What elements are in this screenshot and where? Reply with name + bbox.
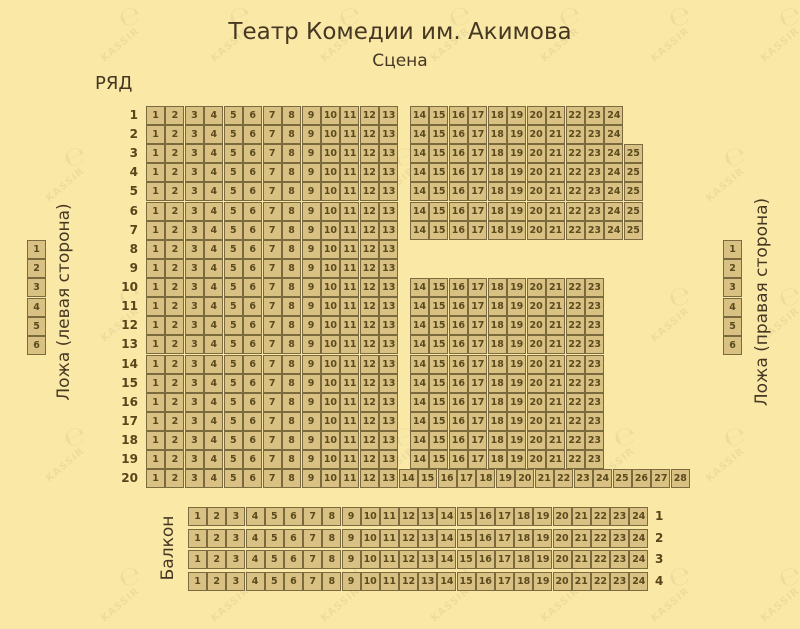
balcony-seat[interactable]: 12: [399, 550, 418, 569]
seat[interactable]: 1: [146, 182, 165, 201]
seat[interactable]: 13: [379, 355, 398, 374]
seat[interactable]: 5: [224, 450, 243, 469]
seat[interactable]: 15: [429, 144, 448, 163]
seat[interactable]: 24: [604, 182, 623, 201]
seat[interactable]: 3: [185, 278, 204, 297]
seat[interactable]: 4: [204, 144, 223, 163]
seat[interactable]: 9: [302, 221, 321, 240]
seat[interactable]: 22: [566, 412, 585, 431]
seat[interactable]: 23: [585, 450, 604, 469]
seat[interactable]: 17: [468, 355, 487, 374]
seat[interactable]: 21: [546, 163, 565, 182]
seat[interactable]: 10: [321, 412, 340, 431]
loge-left-seat[interactable]: 1: [27, 240, 46, 259]
seat[interactable]: 5: [224, 163, 243, 182]
seat[interactable]: 6: [243, 450, 262, 469]
balcony-seat[interactable]: 15: [457, 550, 476, 569]
seat[interactable]: 14: [410, 221, 429, 240]
seat[interactable]: 2: [165, 125, 184, 144]
seat[interactable]: 17: [468, 163, 487, 182]
balcony-seat[interactable]: 21: [572, 529, 591, 548]
balcony-seat[interactable]: 9: [342, 572, 361, 591]
seat[interactable]: 6: [243, 316, 262, 335]
seat[interactable]: 2: [165, 335, 184, 354]
seat[interactable]: 20: [527, 374, 546, 393]
seat[interactable]: 22: [566, 106, 585, 125]
balcony-seat[interactable]: 23: [610, 529, 629, 548]
seat[interactable]: 15: [429, 221, 448, 240]
seat[interactable]: 16: [449, 202, 468, 221]
seat[interactable]: 18: [488, 106, 507, 125]
seat[interactable]: 10: [321, 316, 340, 335]
seat[interactable]: 10: [321, 240, 340, 259]
balcony-seat[interactable]: 4: [246, 572, 265, 591]
seat[interactable]: 12: [360, 163, 379, 182]
seat[interactable]: 4: [204, 469, 223, 488]
seat[interactable]: 6: [243, 335, 262, 354]
seat[interactable]: 17: [468, 144, 487, 163]
seat[interactable]: 16: [449, 125, 468, 144]
seat[interactable]: 16: [449, 163, 468, 182]
seat[interactable]: 16: [449, 355, 468, 374]
balcony-seat[interactable]: 18: [514, 550, 533, 569]
seat[interactable]: 4: [204, 355, 223, 374]
seat[interactable]: 4: [204, 335, 223, 354]
seat[interactable]: 9: [302, 412, 321, 431]
seat[interactable]: 1: [146, 221, 165, 240]
seat[interactable]: 21: [546, 278, 565, 297]
seat[interactable]: 5: [224, 182, 243, 201]
seat[interactable]: 11: [340, 374, 359, 393]
seat[interactable]: 17: [468, 297, 487, 316]
seat[interactable]: 13: [379, 335, 398, 354]
seat[interactable]: 16: [449, 335, 468, 354]
seat[interactable]: 12: [360, 297, 379, 316]
seat[interactable]: 19: [507, 335, 526, 354]
seat[interactable]: 10: [321, 163, 340, 182]
seat[interactable]: 19: [507, 144, 526, 163]
seat[interactable]: 7: [263, 335, 282, 354]
seat[interactable]: 22: [566, 278, 585, 297]
seat[interactable]: 14: [410, 335, 429, 354]
seat[interactable]: 18: [488, 450, 507, 469]
seat[interactable]: 9: [302, 450, 321, 469]
seat[interactable]: 17: [468, 106, 487, 125]
seat[interactable]: 20: [527, 393, 546, 412]
loge-left-seat[interactable]: 5: [27, 317, 46, 336]
balcony-seat[interactable]: 20: [553, 529, 572, 548]
seat[interactable]: 22: [554, 469, 573, 488]
seat[interactable]: 10: [321, 450, 340, 469]
seat[interactable]: 12: [360, 469, 379, 488]
seat[interactable]: 5: [224, 278, 243, 297]
seat[interactable]: 9: [302, 106, 321, 125]
seat[interactable]: 4: [204, 431, 223, 450]
seat[interactable]: 10: [321, 259, 340, 278]
balcony-seat[interactable]: 13: [418, 550, 437, 569]
seat[interactable]: 3: [185, 450, 204, 469]
seat[interactable]: 17: [468, 221, 487, 240]
seat[interactable]: 22: [566, 374, 585, 393]
seat[interactable]: 6: [243, 469, 262, 488]
seat[interactable]: 8: [282, 163, 301, 182]
seat[interactable]: 10: [321, 393, 340, 412]
seat[interactable]: 13: [379, 106, 398, 125]
seat[interactable]: 5: [224, 221, 243, 240]
seat[interactable]: 21: [546, 297, 565, 316]
balcony-seat[interactable]: 5: [265, 507, 284, 526]
seat[interactable]: 25: [624, 182, 643, 201]
seat[interactable]: 21: [546, 431, 565, 450]
seat[interactable]: 20: [527, 221, 546, 240]
seat[interactable]: 13: [379, 297, 398, 316]
seat[interactable]: 20: [527, 125, 546, 144]
seat[interactable]: 19: [507, 163, 526, 182]
seat[interactable]: 18: [488, 125, 507, 144]
seat[interactable]: 17: [468, 278, 487, 297]
seat[interactable]: 23: [585, 374, 604, 393]
seat[interactable]: 22: [566, 163, 585, 182]
seat[interactable]: 16: [449, 144, 468, 163]
balcony-seat[interactable]: 3: [226, 507, 245, 526]
balcony-seat[interactable]: 20: [553, 550, 572, 569]
seat[interactable]: 15: [429, 355, 448, 374]
seat[interactable]: 13: [379, 316, 398, 335]
seat[interactable]: 23: [585, 316, 604, 335]
seat[interactable]: 7: [263, 355, 282, 374]
seat[interactable]: 14: [399, 469, 418, 488]
seat[interactable]: 11: [340, 297, 359, 316]
seat[interactable]: 20: [527, 144, 546, 163]
seat[interactable]: 12: [360, 125, 379, 144]
seat[interactable]: 17: [468, 125, 487, 144]
seat[interactable]: 24: [604, 202, 623, 221]
seat[interactable]: 5: [224, 431, 243, 450]
seat[interactable]: 23: [585, 431, 604, 450]
seat[interactable]: 14: [410, 278, 429, 297]
seat[interactable]: 6: [243, 106, 262, 125]
seat[interactable]: 25: [624, 221, 643, 240]
seat[interactable]: 2: [165, 182, 184, 201]
seat[interactable]: 5: [224, 297, 243, 316]
seat[interactable]: 7: [263, 182, 282, 201]
seat[interactable]: 15: [418, 469, 437, 488]
seat[interactable]: 13: [379, 240, 398, 259]
seat[interactable]: 3: [185, 202, 204, 221]
seat[interactable]: 19: [507, 297, 526, 316]
seat[interactable]: 3: [185, 182, 204, 201]
balcony-seat[interactable]: 2: [207, 529, 226, 548]
seat[interactable]: 22: [566, 431, 585, 450]
seat[interactable]: 8: [282, 297, 301, 316]
seat[interactable]: 7: [263, 125, 282, 144]
seat[interactable]: 1: [146, 450, 165, 469]
seat[interactable]: 14: [410, 412, 429, 431]
seat[interactable]: 3: [185, 240, 204, 259]
seat[interactable]: 17: [468, 202, 487, 221]
seat[interactable]: 20: [527, 106, 546, 125]
seat[interactable]: 20: [527, 450, 546, 469]
seat[interactable]: 11: [340, 106, 359, 125]
seat[interactable]: 6: [243, 278, 262, 297]
seat[interactable]: 18: [488, 297, 507, 316]
balcony-seat[interactable]: 5: [265, 550, 284, 569]
seat[interactable]: 5: [224, 393, 243, 412]
seat[interactable]: 7: [263, 393, 282, 412]
seat[interactable]: 7: [263, 259, 282, 278]
seat[interactable]: 22: [566, 182, 585, 201]
seat[interactable]: 6: [243, 259, 262, 278]
balcony-seat[interactable]: 16: [476, 507, 495, 526]
seat[interactable]: 13: [379, 163, 398, 182]
seat[interactable]: 12: [360, 393, 379, 412]
balcony-seat[interactable]: 7: [303, 529, 322, 548]
seat[interactable]: 13: [379, 202, 398, 221]
seat[interactable]: 19: [507, 374, 526, 393]
seat[interactable]: 11: [340, 335, 359, 354]
loge-left-seat[interactable]: 4: [27, 298, 46, 317]
seat[interactable]: 6: [243, 393, 262, 412]
seat[interactable]: 2: [165, 412, 184, 431]
seat[interactable]: 6: [243, 202, 262, 221]
seat[interactable]: 13: [379, 412, 398, 431]
seat[interactable]: 9: [302, 278, 321, 297]
seat[interactable]: 23: [585, 355, 604, 374]
seat[interactable]: 20: [527, 316, 546, 335]
seat[interactable]: 17: [468, 450, 487, 469]
seat[interactable]: 15: [429, 106, 448, 125]
seat[interactable]: 22: [566, 393, 585, 412]
seat[interactable]: 9: [302, 163, 321, 182]
seat[interactable]: 7: [263, 316, 282, 335]
seat[interactable]: 9: [302, 335, 321, 354]
balcony-seat[interactable]: 3: [226, 572, 245, 591]
seat[interactable]: 9: [302, 144, 321, 163]
seat[interactable]: 18: [488, 335, 507, 354]
seat[interactable]: 9: [302, 240, 321, 259]
seat[interactable]: 4: [204, 125, 223, 144]
seat[interactable]: 8: [282, 221, 301, 240]
seat[interactable]: 13: [379, 469, 398, 488]
seat[interactable]: 8: [282, 335, 301, 354]
balcony-seat[interactable]: 18: [514, 529, 533, 548]
seat[interactable]: 18: [476, 469, 495, 488]
seat[interactable]: 8: [282, 412, 301, 431]
seat[interactable]: 13: [379, 221, 398, 240]
seat[interactable]: 16: [449, 182, 468, 201]
seat[interactable]: 5: [224, 316, 243, 335]
balcony-seat[interactable]: 6: [284, 572, 303, 591]
seat[interactable]: 3: [185, 125, 204, 144]
seat[interactable]: 1: [146, 316, 165, 335]
balcony-seat[interactable]: 7: [303, 572, 322, 591]
seat[interactable]: 23: [585, 297, 604, 316]
seat[interactable]: 3: [185, 106, 204, 125]
balcony-seat[interactable]: 6: [284, 529, 303, 548]
seat[interactable]: 9: [302, 125, 321, 144]
seat[interactable]: 17: [468, 412, 487, 431]
seat[interactable]: 8: [282, 202, 301, 221]
seat[interactable]: 12: [360, 144, 379, 163]
seat[interactable]: 21: [546, 335, 565, 354]
seat[interactable]: 28: [671, 469, 690, 488]
seat[interactable]: 21: [546, 106, 565, 125]
seat[interactable]: 24: [604, 163, 623, 182]
seat[interactable]: 13: [379, 450, 398, 469]
seat[interactable]: 14: [410, 393, 429, 412]
seat[interactable]: 12: [360, 259, 379, 278]
seat[interactable]: 22: [566, 202, 585, 221]
seat[interactable]: 15: [429, 278, 448, 297]
seat[interactable]: 7: [263, 374, 282, 393]
seat[interactable]: 14: [410, 297, 429, 316]
seat[interactable]: 6: [243, 240, 262, 259]
seat[interactable]: 15: [429, 182, 448, 201]
balcony-seat[interactable]: 13: [418, 572, 437, 591]
balcony-seat[interactable]: 14: [437, 550, 456, 569]
balcony-seat[interactable]: 13: [418, 529, 437, 548]
seat[interactable]: 13: [379, 374, 398, 393]
seat[interactable]: 4: [204, 412, 223, 431]
seat[interactable]: 20: [527, 297, 546, 316]
seat[interactable]: 3: [185, 316, 204, 335]
seat[interactable]: 8: [282, 355, 301, 374]
balcony-seat[interactable]: 19: [533, 529, 552, 548]
seat[interactable]: 22: [566, 335, 585, 354]
seat[interactable]: 3: [185, 469, 204, 488]
seat[interactable]: 25: [624, 144, 643, 163]
seat[interactable]: 21: [546, 355, 565, 374]
seat[interactable]: 4: [204, 393, 223, 412]
balcony-seat[interactable]: 12: [399, 529, 418, 548]
seat[interactable]: 19: [507, 355, 526, 374]
seat[interactable]: 21: [546, 412, 565, 431]
seat[interactable]: 11: [340, 202, 359, 221]
loge-left-seat[interactable]: 6: [27, 336, 46, 355]
balcony-seat[interactable]: 21: [572, 550, 591, 569]
seat[interactable]: 7: [263, 106, 282, 125]
seat[interactable]: 11: [340, 240, 359, 259]
seat[interactable]: 21: [546, 393, 565, 412]
balcony-seat[interactable]: 7: [303, 507, 322, 526]
balcony-seat[interactable]: 6: [284, 507, 303, 526]
seat[interactable]: 8: [282, 393, 301, 412]
seat[interactable]: 7: [263, 202, 282, 221]
seat[interactable]: 10: [321, 125, 340, 144]
balcony-seat[interactable]: 23: [610, 572, 629, 591]
seat[interactable]: 2: [165, 431, 184, 450]
seat[interactable]: 4: [204, 297, 223, 316]
seat[interactable]: 17: [468, 374, 487, 393]
seat[interactable]: 14: [410, 125, 429, 144]
balcony-seat[interactable]: 23: [610, 550, 629, 569]
seat[interactable]: 4: [204, 202, 223, 221]
seat[interactable]: 3: [185, 431, 204, 450]
seat[interactable]: 22: [566, 125, 585, 144]
seat[interactable]: 15: [429, 374, 448, 393]
seat[interactable]: 20: [527, 278, 546, 297]
seat[interactable]: 4: [204, 259, 223, 278]
seat[interactable]: 18: [488, 144, 507, 163]
seat[interactable]: 8: [282, 240, 301, 259]
seat[interactable]: 9: [302, 182, 321, 201]
seat[interactable]: 22: [566, 297, 585, 316]
seat[interactable]: 23: [585, 106, 604, 125]
balcony-seat[interactable]: 17: [495, 529, 514, 548]
seat[interactable]: 22: [566, 355, 585, 374]
seat[interactable]: 23: [585, 393, 604, 412]
seat[interactable]: 18: [488, 316, 507, 335]
seat[interactable]: 12: [360, 202, 379, 221]
seat[interactable]: 7: [263, 144, 282, 163]
seat[interactable]: 19: [507, 202, 526, 221]
loge-right-seat[interactable]: 4: [723, 298, 742, 317]
seat[interactable]: 23: [585, 125, 604, 144]
seat[interactable]: 9: [302, 297, 321, 316]
balcony-seat[interactable]: 6: [284, 550, 303, 569]
seat[interactable]: 8: [282, 469, 301, 488]
balcony-seat[interactable]: 15: [457, 507, 476, 526]
seat[interactable]: 14: [410, 182, 429, 201]
seat[interactable]: 25: [613, 469, 632, 488]
seat[interactable]: 21: [546, 202, 565, 221]
balcony-seat[interactable]: 18: [514, 572, 533, 591]
seat[interactable]: 10: [321, 431, 340, 450]
seat[interactable]: 20: [515, 469, 534, 488]
seat[interactable]: 16: [449, 412, 468, 431]
balcony-seat[interactable]: 8: [322, 507, 341, 526]
seat[interactable]: 17: [468, 182, 487, 201]
seat[interactable]: 11: [340, 144, 359, 163]
seat[interactable]: 7: [263, 431, 282, 450]
seat[interactable]: 5: [224, 335, 243, 354]
seat[interactable]: 23: [574, 469, 593, 488]
seat[interactable]: 4: [204, 374, 223, 393]
balcony-seat[interactable]: 14: [437, 507, 456, 526]
seat[interactable]: 7: [263, 412, 282, 431]
seat[interactable]: 10: [321, 202, 340, 221]
seat[interactable]: 25: [624, 202, 643, 221]
seat[interactable]: 10: [321, 469, 340, 488]
seat[interactable]: 8: [282, 450, 301, 469]
seat[interactable]: 4: [204, 278, 223, 297]
seat[interactable]: 3: [185, 355, 204, 374]
seat[interactable]: 22: [566, 221, 585, 240]
seat[interactable]: 1: [146, 259, 165, 278]
seat[interactable]: 10: [321, 182, 340, 201]
seat[interactable]: 5: [224, 259, 243, 278]
balcony-seat[interactable]: 11: [380, 572, 399, 591]
balcony-seat[interactable]: 14: [437, 529, 456, 548]
seat[interactable]: 19: [507, 106, 526, 125]
seat[interactable]: 10: [321, 144, 340, 163]
seat[interactable]: 17: [468, 335, 487, 354]
seat[interactable]: 2: [165, 144, 184, 163]
seat[interactable]: 6: [243, 163, 262, 182]
seat[interactable]: 18: [488, 221, 507, 240]
seat[interactable]: 11: [340, 125, 359, 144]
seat[interactable]: 17: [468, 393, 487, 412]
seat[interactable]: 4: [204, 182, 223, 201]
seat[interactable]: 14: [410, 450, 429, 469]
seat[interactable]: 1: [146, 431, 165, 450]
seat[interactable]: 25: [624, 163, 643, 182]
seat[interactable]: 12: [360, 278, 379, 297]
seat[interactable]: 24: [604, 106, 623, 125]
balcony-seat[interactable]: 19: [533, 507, 552, 526]
seat[interactable]: 15: [429, 202, 448, 221]
seat[interactable]: 18: [488, 431, 507, 450]
